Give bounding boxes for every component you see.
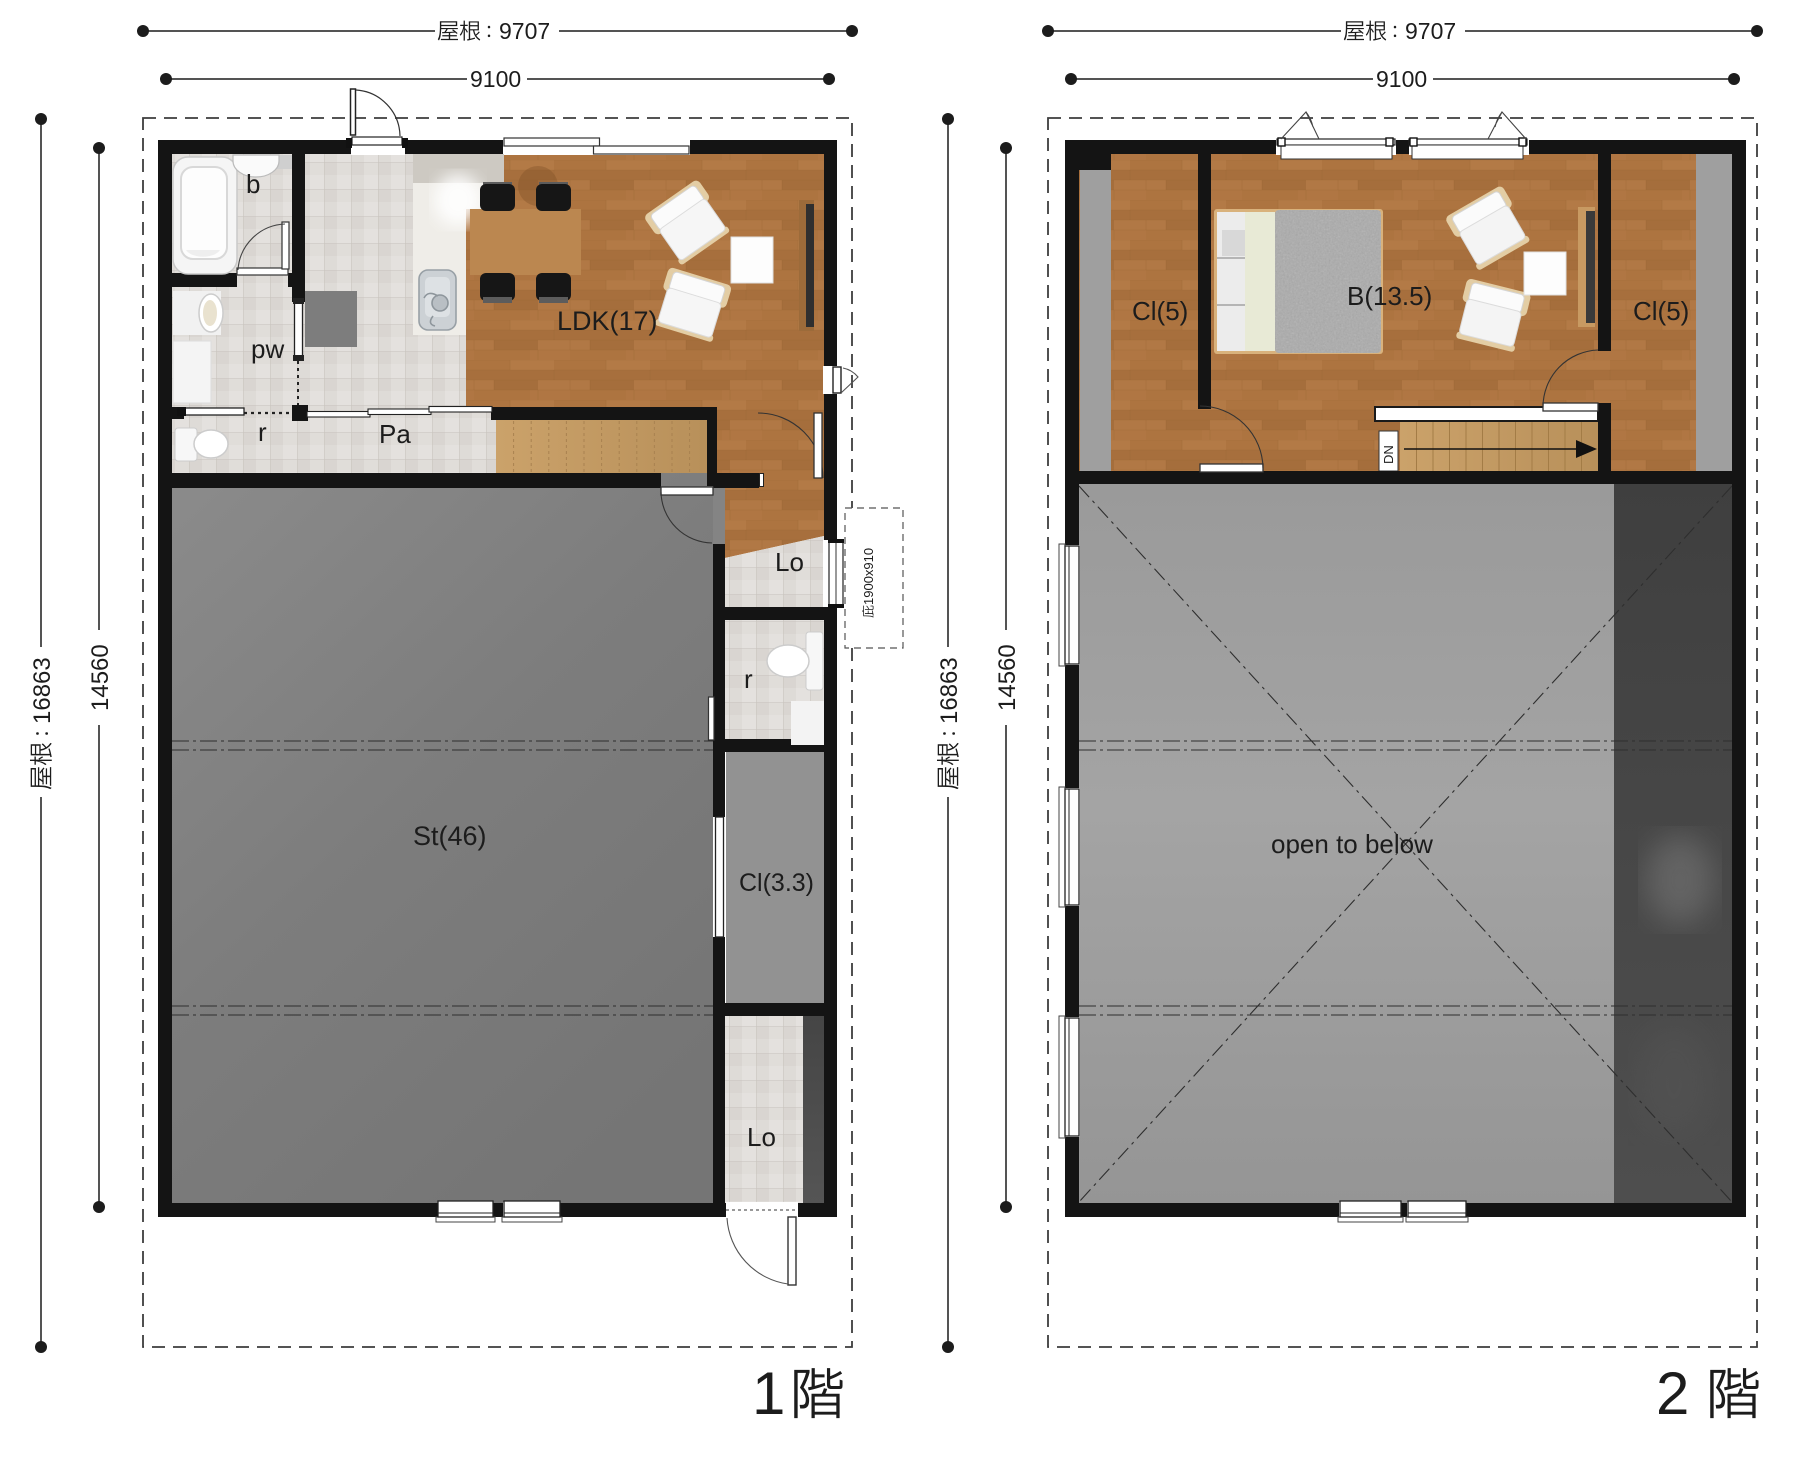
svg-text:1900x910: 1900x910 [861, 548, 876, 605]
svg-text:14560: 14560 [994, 644, 1021, 711]
svg-text:b: b [246, 169, 260, 199]
svg-text:16863: 16863 [936, 657, 963, 724]
svg-text:2: 2 [1656, 1360, 1689, 1427]
svg-text:1: 1 [752, 1360, 785, 1427]
svg-text:16863: 16863 [29, 657, 56, 724]
svg-text:open to below: open to below [1271, 829, 1433, 859]
svg-text:Pa: Pa [379, 419, 411, 449]
svg-text:pw: pw [251, 334, 284, 364]
svg-text:Cl(5): Cl(5) [1633, 296, 1689, 326]
svg-text:14560: 14560 [87, 644, 114, 711]
svg-text:r: r [744, 664, 753, 694]
svg-text:9100: 9100 [1376, 66, 1427, 92]
svg-text:Lo: Lo [775, 547, 804, 577]
svg-text:St(46): St(46) [413, 821, 487, 851]
svg-text:DN: DN [1381, 445, 1396, 464]
svg-text:Lo: Lo [747, 1122, 776, 1152]
svg-text:Cl(3.3): Cl(3.3) [739, 869, 814, 897]
svg-text:LDK(17): LDK(17) [557, 306, 658, 336]
svg-text:B(13.5): B(13.5) [1347, 281, 1432, 311]
svg-text:9100: 9100 [470, 66, 521, 92]
svg-text:9707: 9707 [499, 18, 550, 44]
svg-text:Cl(5): Cl(5) [1132, 296, 1188, 326]
svg-text:9707: 9707 [1405, 18, 1456, 44]
svg-text:r: r [258, 417, 267, 447]
